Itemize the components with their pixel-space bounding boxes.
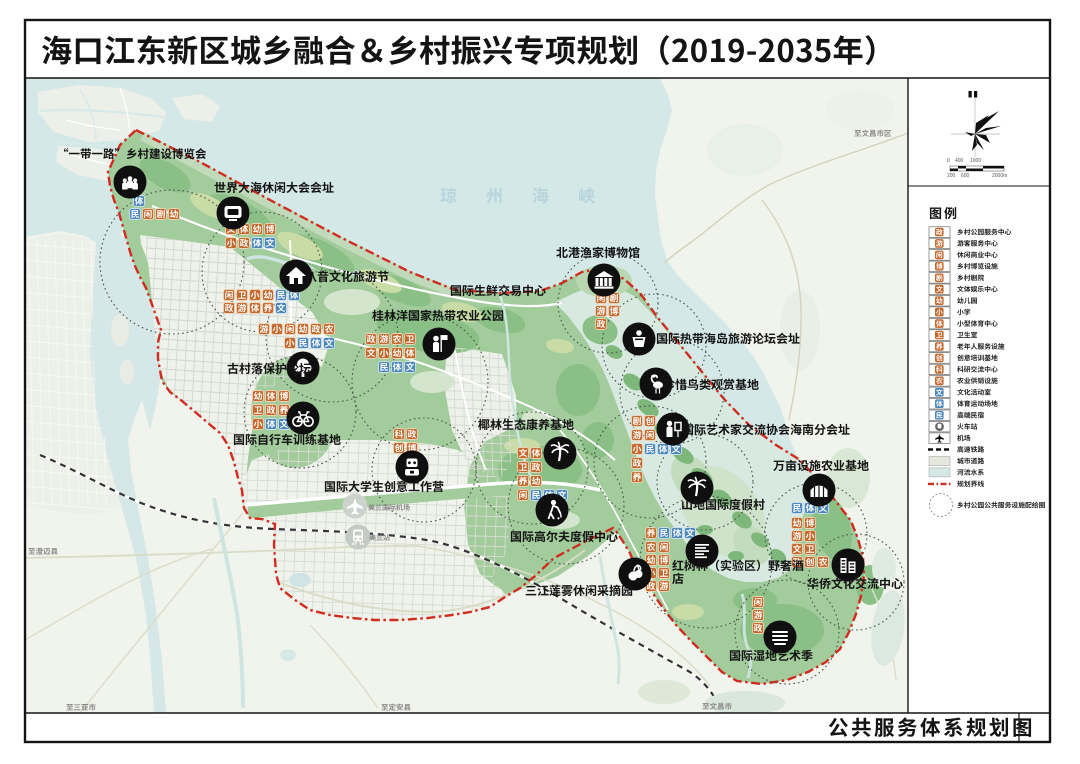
svg-text:400: 400 [955,158,964,164]
svg-text:600: 600 [961,173,970,179]
svg-text:0: 0 [947,158,950,164]
svg-text:1000: 1000 [970,158,981,164]
svg-text:200: 200 [947,173,956,179]
svg-text:2000m: 2000m [992,173,1007,179]
